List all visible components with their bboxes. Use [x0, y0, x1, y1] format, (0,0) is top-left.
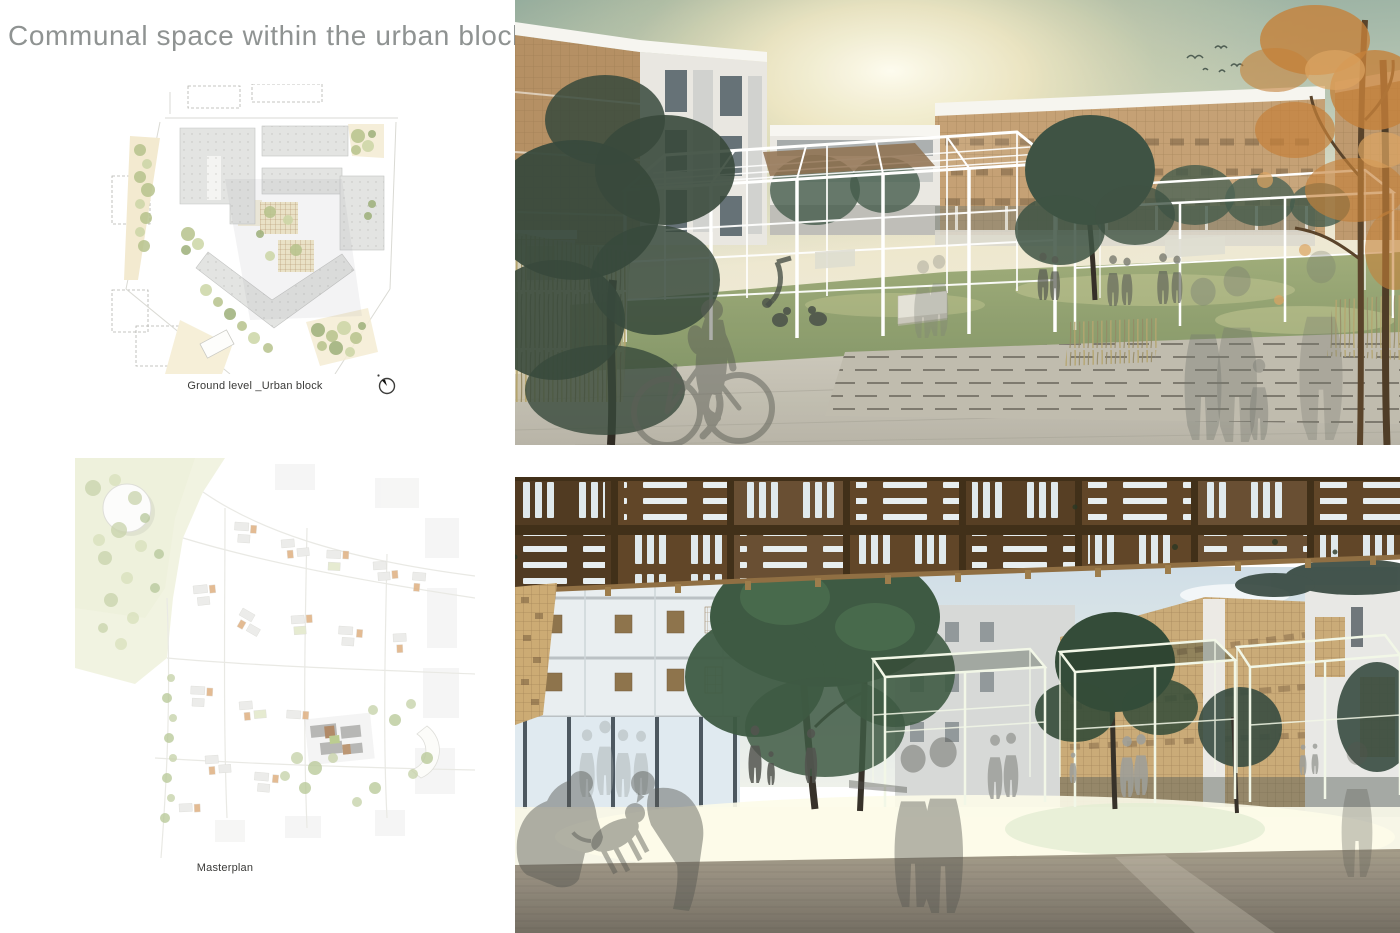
ground-level-plan — [110, 84, 400, 374]
render-wash — [515, 477, 1400, 933]
masterplan-map — [75, 458, 475, 858]
masterplan-wash — [75, 458, 475, 858]
masterplan-caption: Masterplan — [75, 862, 375, 874]
light-haze — [515, 0, 1400, 445]
communal-lawn-render — [515, 0, 1400, 445]
ground-level-caption: Ground level _Urban block — [110, 380, 400, 392]
presentation-board: Communal space within the urban block — [0, 0, 1400, 933]
page-title: Communal space within the urban block — [8, 20, 527, 52]
north-arrow-icon — [374, 372, 398, 396]
timber-canopy-courtyard-render — [515, 477, 1400, 933]
